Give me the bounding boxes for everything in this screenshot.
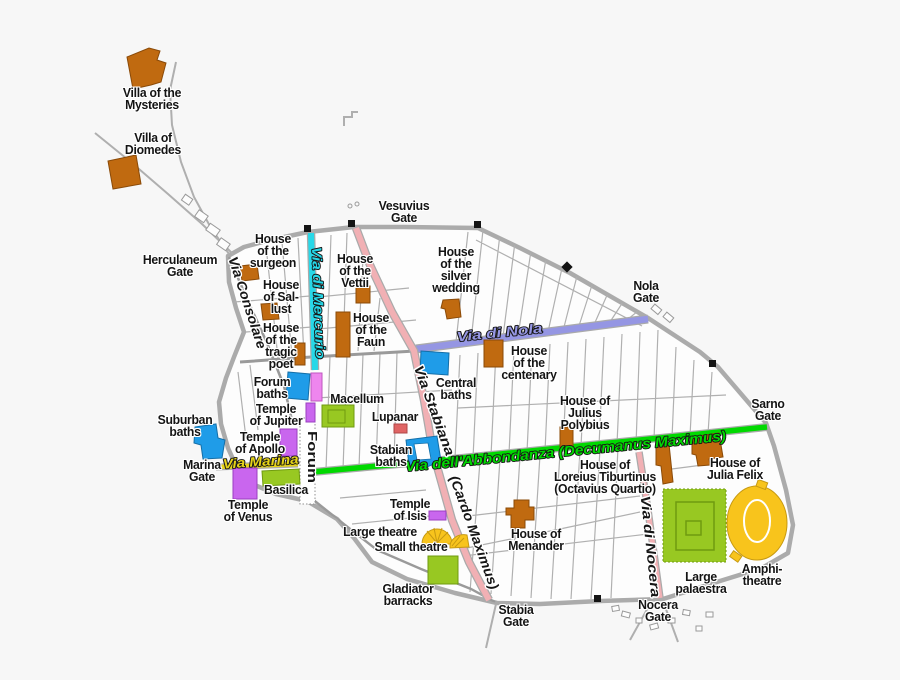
- pompeii-map: Via Consolare Via di Mercurio Via Stabia…: [0, 0, 900, 680]
- forum-label: Forum: [305, 431, 320, 483]
- temple-of-fortuna-building: [311, 373, 322, 401]
- temple-of-venus-building: [233, 468, 257, 499]
- basilica-building: [262, 469, 300, 486]
- amphitheatre-building: [727, 486, 787, 560]
- gladiator-barracks-building: [428, 556, 458, 584]
- large-palaestra-building: [663, 489, 726, 562]
- house-of-sallust-building: [261, 303, 279, 320]
- house-of-the-tragic-poet-building: [295, 343, 305, 365]
- lupanar-building: [394, 424, 407, 433]
- house-of-the-centenary-building: [484, 340, 503, 367]
- tombs: [612, 605, 713, 631]
- house-of-the-vettii-building: [356, 286, 370, 303]
- temple-of-isis-building: [429, 511, 446, 520]
- villa-of-diomedes-building: [108, 155, 141, 189]
- house-of-the-faun-building: [336, 312, 350, 357]
- forum-baths-building: [286, 372, 310, 400]
- temple-of-jupiter-building: [306, 403, 315, 422]
- macellum-building: [322, 405, 354, 427]
- villa-of-the-mysteries-building: [127, 48, 166, 89]
- map-canvas: Via Consolare Via di Mercurio Via Stabia…: [0, 0, 900, 680]
